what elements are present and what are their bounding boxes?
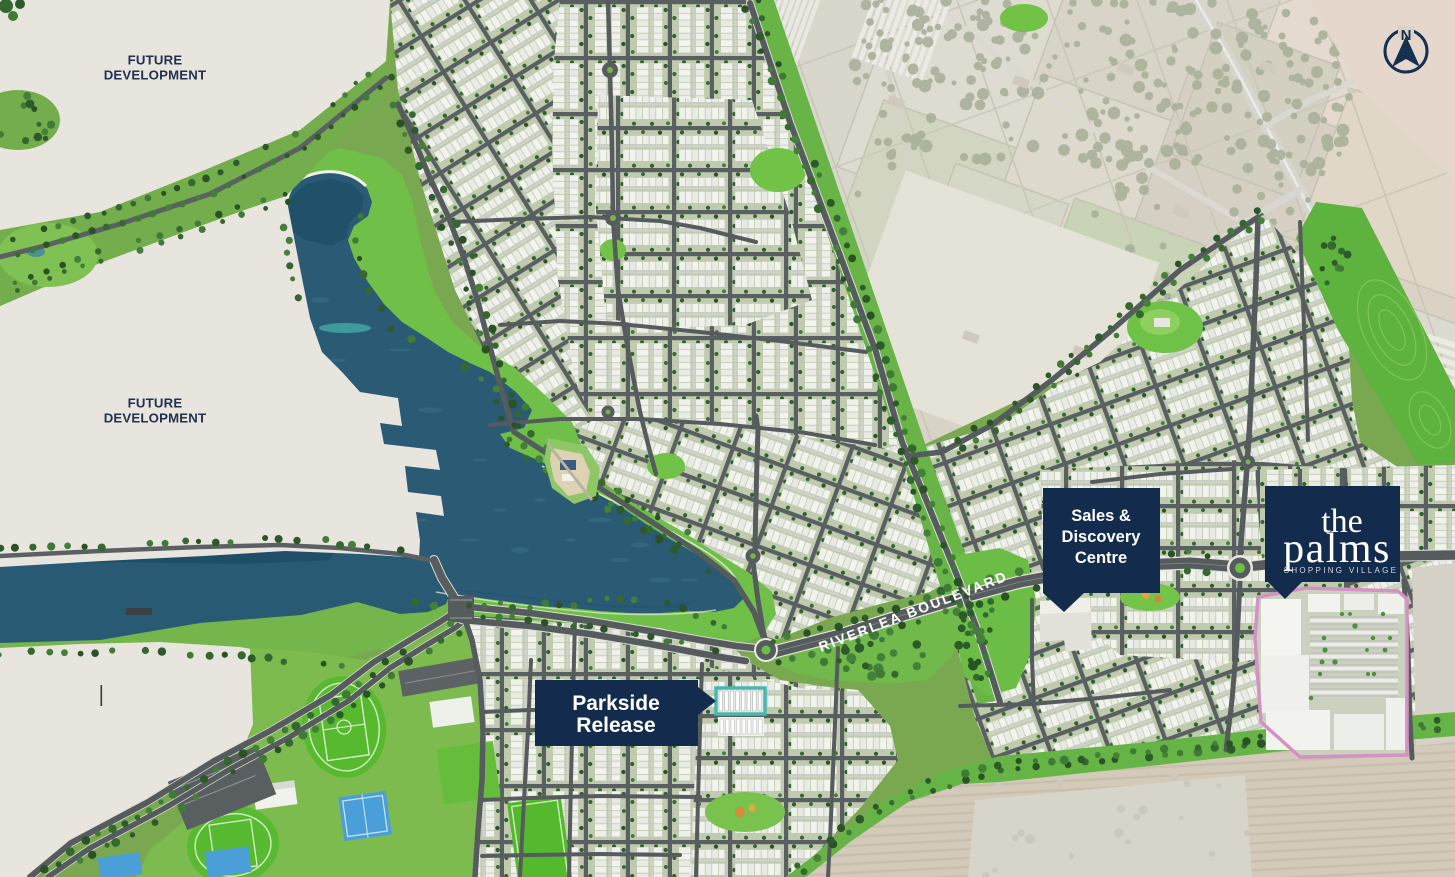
svg-text:DEVELOPMENT: DEVELOPMENT [104,411,207,426]
svg-text:Parkside: Parkside [572,692,660,715]
svg-text:Sales &: Sales & [1071,507,1131,525]
svg-text:DEVELOPMENT: DEVELOPMENT [104,68,207,83]
svg-text:Discovery: Discovery [1062,528,1142,546]
svg-text:FUTURE: FUTURE [128,53,183,68]
svg-text:Centre: Centre [1075,549,1127,567]
svg-text:FUTURE: FUTURE [128,396,183,411]
svg-text:SHOPPING VILLAGE: SHOPPING VILLAGE [1284,566,1399,575]
svg-text:Release: Release [576,714,655,737]
